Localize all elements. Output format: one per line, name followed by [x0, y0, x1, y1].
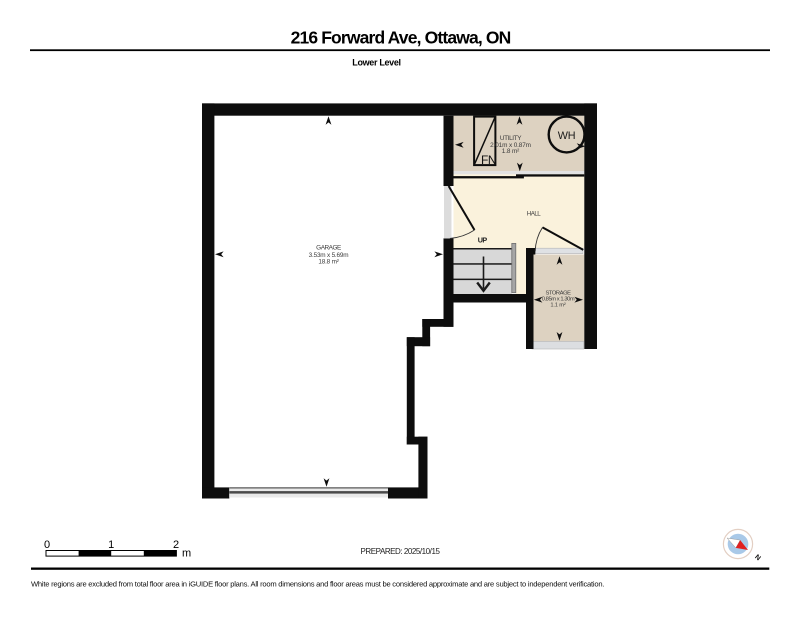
svg-text:1.1 m²: 1.1 m² — [550, 302, 565, 308]
svg-text:1: 1 — [108, 539, 114, 551]
svg-text:PREPARED: 2025/10/15: PREPARED: 2025/10/15 — [361, 547, 441, 556]
svg-text:0: 0 — [44, 539, 50, 551]
svg-text:m: m — [182, 548, 191, 560]
svg-text:UTILITY: UTILITY — [500, 135, 522, 142]
svg-text:UP: UP — [478, 235, 488, 244]
svg-text:GARAGE: GARAGE — [316, 244, 341, 251]
svg-text:STORAGE: STORAGE — [545, 290, 571, 296]
svg-text:Lower Level: Lower Level — [352, 57, 400, 67]
svg-text:1.8 m²: 1.8 m² — [502, 148, 519, 155]
svg-text:White regions are excluded fro: White regions are excluded from total fl… — [31, 580, 604, 589]
svg-text:2: 2 — [173, 539, 179, 551]
svg-text:HALL: HALL — [527, 211, 542, 218]
svg-text:FN: FN — [481, 153, 496, 167]
svg-text:WH: WH — [558, 130, 576, 142]
svg-text:216 Forward Ave, Ottawa, ON: 216 Forward Ave, Ottawa, ON — [291, 28, 511, 48]
svg-text:18.8 m²: 18.8 m² — [318, 258, 338, 265]
